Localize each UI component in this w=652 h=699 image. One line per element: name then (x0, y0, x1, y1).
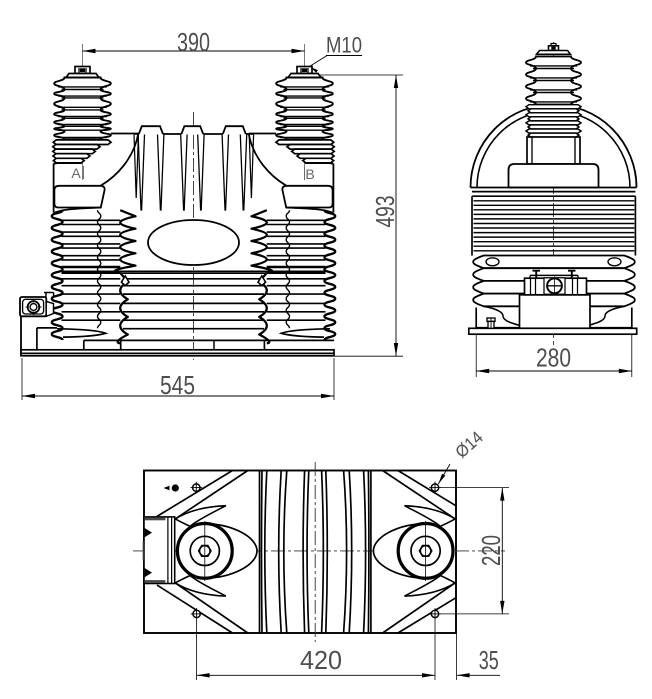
svg-text:A: A (71, 165, 81, 181)
svg-text:220: 220 (476, 535, 506, 566)
svg-text:390: 390 (177, 27, 210, 57)
svg-text:B: B (305, 166, 314, 182)
svg-text:420: 420 (300, 645, 342, 675)
svg-text:280: 280 (536, 343, 571, 373)
svg-text:Ø14: Ø14 (451, 427, 487, 462)
svg-text:545: 545 (160, 370, 195, 400)
svg-text:35: 35 (479, 645, 499, 675)
svg-text:493: 493 (370, 196, 400, 228)
svg-text:M10: M10 (326, 33, 362, 58)
